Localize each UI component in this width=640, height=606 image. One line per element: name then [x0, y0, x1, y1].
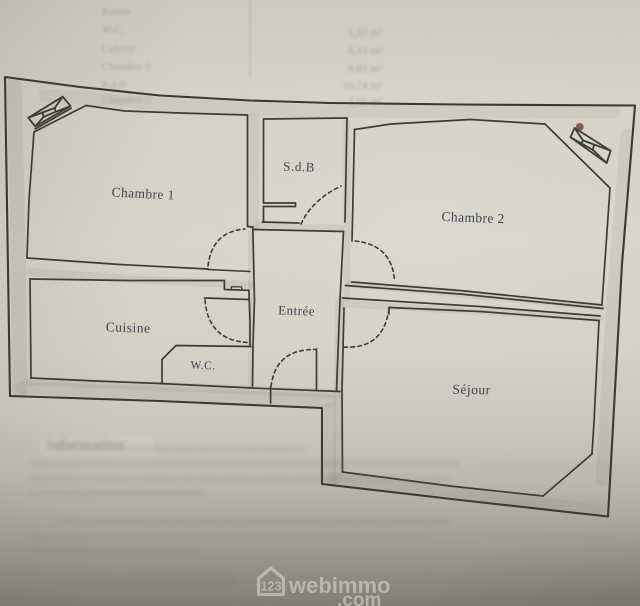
svg-text:S.d.B: S.d.B: [283, 158, 315, 174]
svg-text:Entrée: Entrée: [278, 302, 315, 318]
svg-text:Séjour: Séjour: [452, 382, 491, 398]
svg-text:123: 123: [261, 580, 282, 594]
svg-text:Cuisine: Cuisine: [106, 319, 151, 336]
svg-text:Chambre 1: Chambre 1: [111, 184, 175, 202]
svg-text:W.C.: W.C.: [190, 360, 216, 373]
svg-text:Chambre 2: Chambre 2: [441, 209, 505, 226]
